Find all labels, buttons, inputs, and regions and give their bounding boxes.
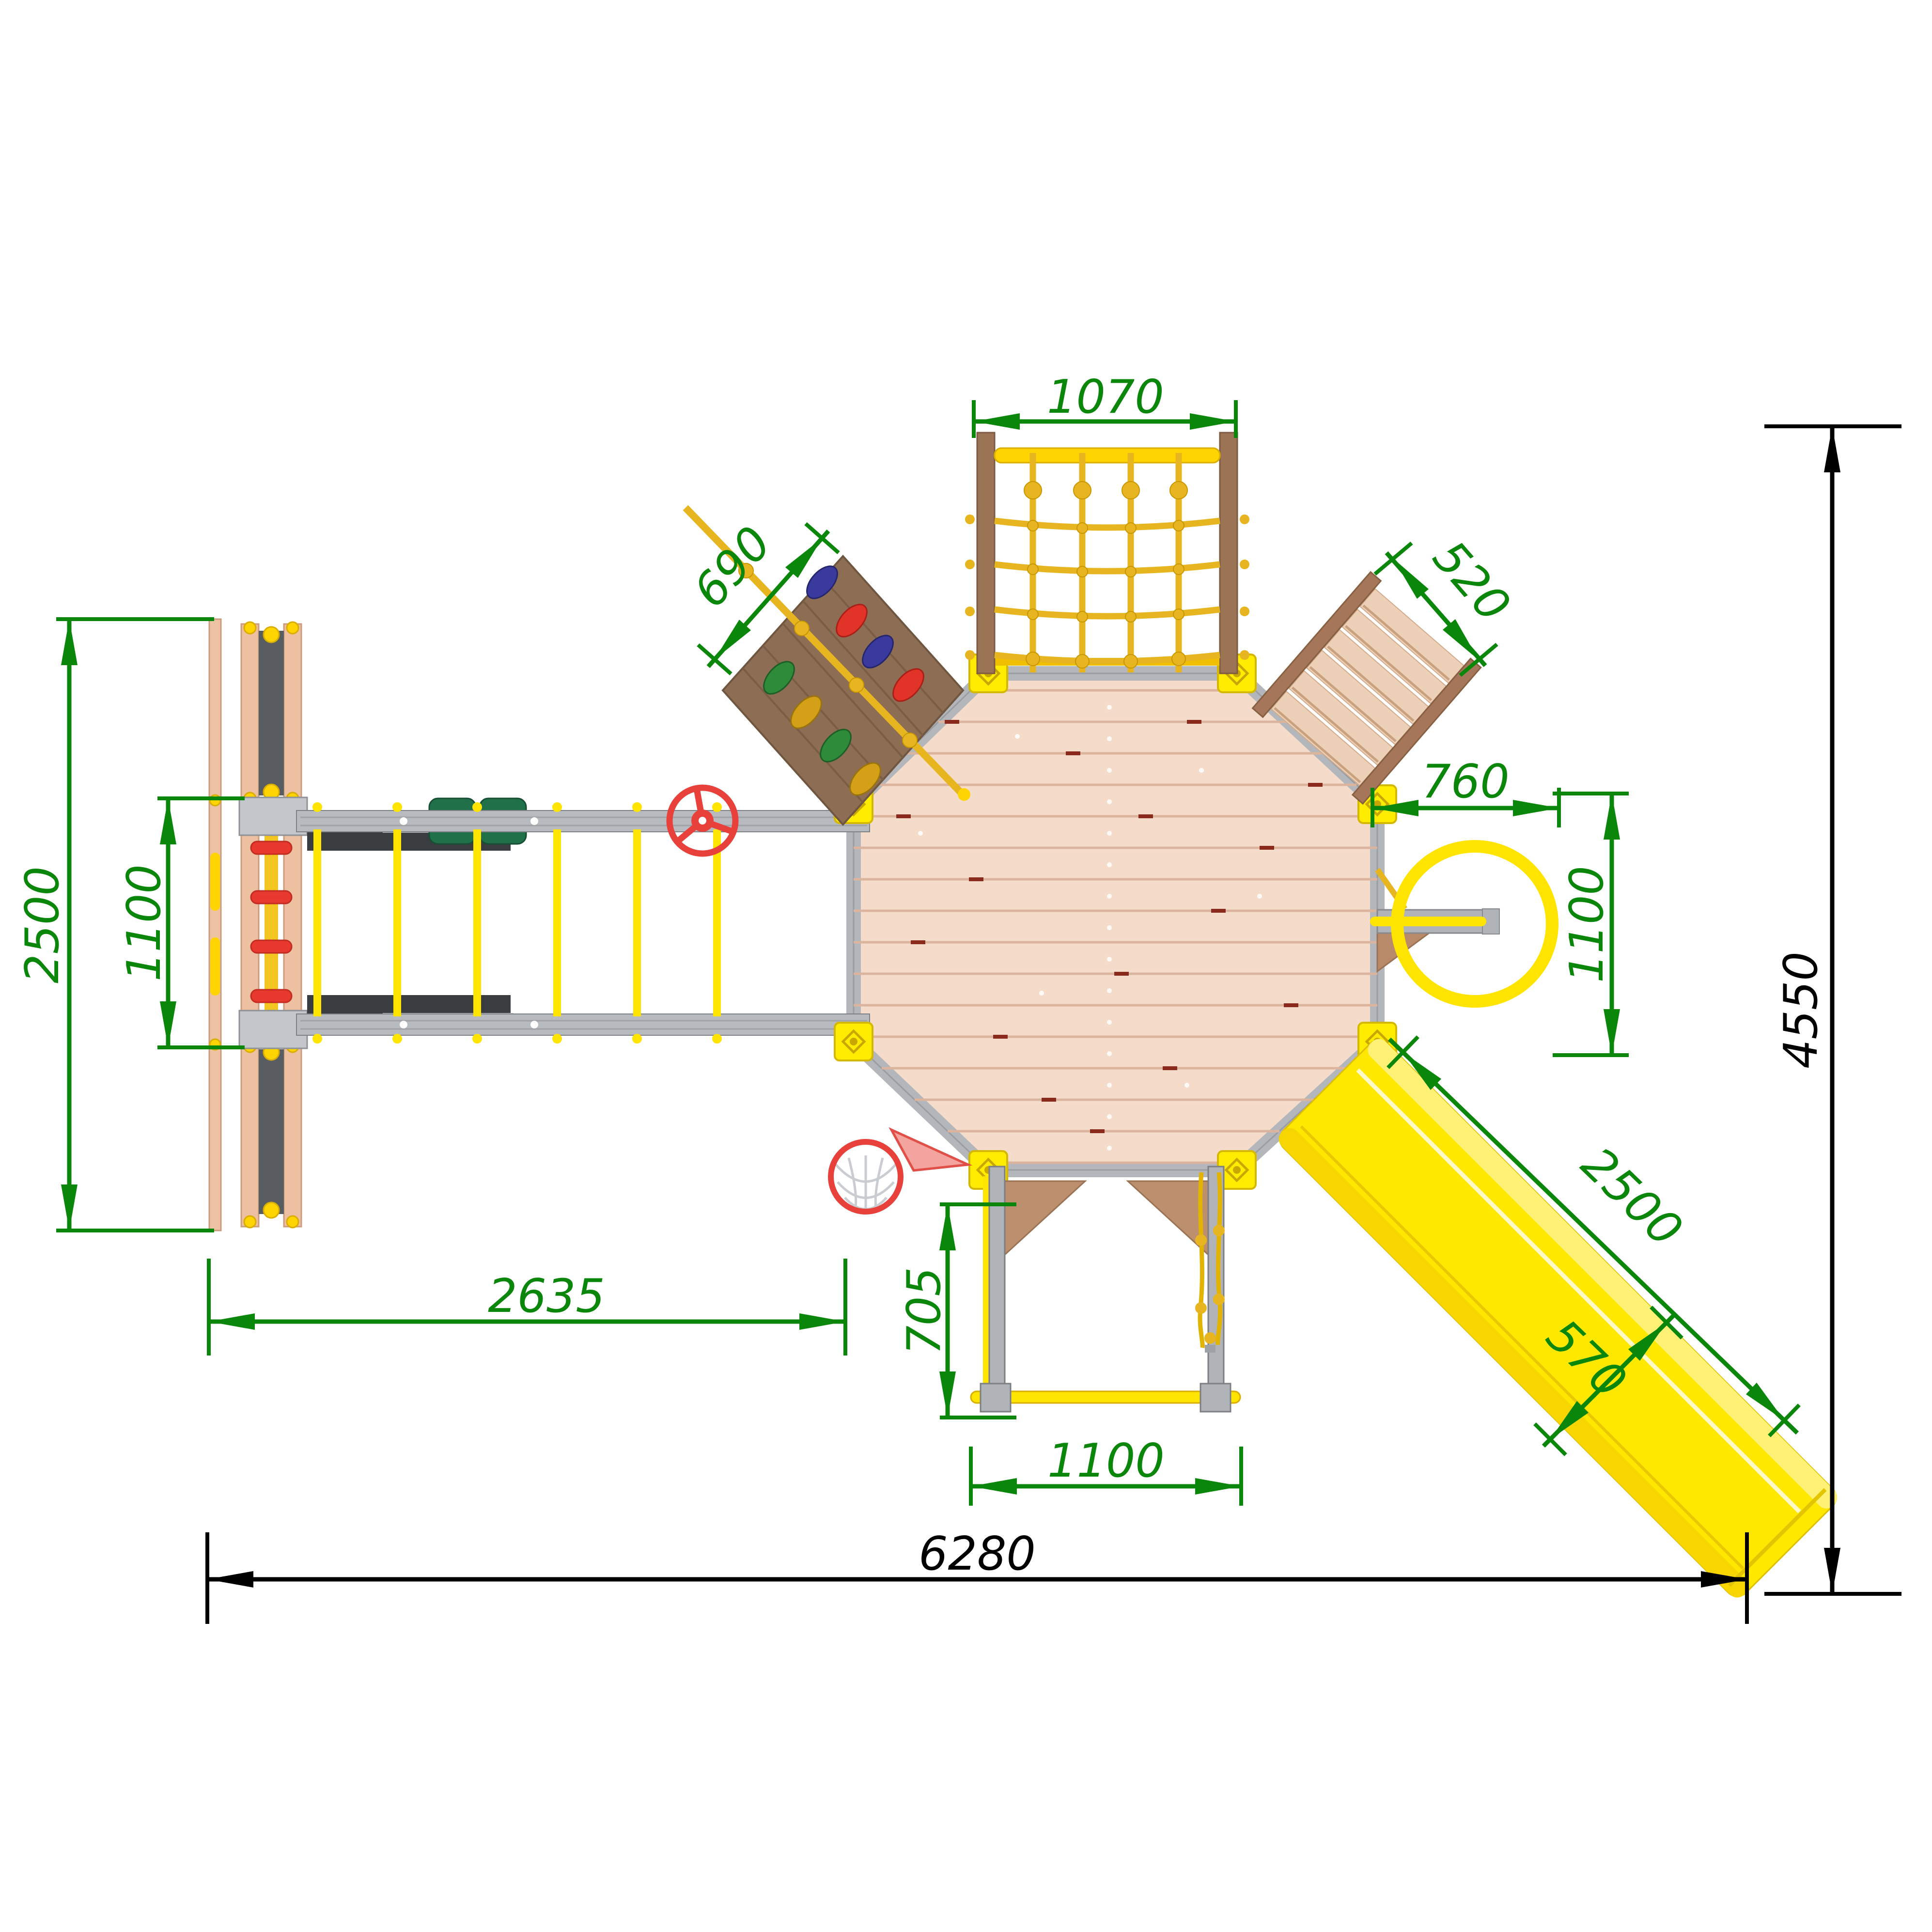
dim-ring-offset: 760 — [1372, 755, 1559, 827]
ladder-beam-left — [241, 624, 259, 1227]
bridge-rungs — [317, 829, 717, 1016]
dim-label-bridge-length: 2635 — [488, 1270, 605, 1323]
dim-bridge-length: 2635 — [209, 1259, 845, 1356]
swing-brace-right — [1128, 1181, 1208, 1255]
drawing-sheet: 1070 690 520 760 1100 — [0, 0, 1932, 1932]
dim-label-swing-depth: 705 — [898, 1267, 951, 1355]
swing-foot-right — [1200, 1384, 1231, 1412]
swing-foot-left — [981, 1384, 1011, 1412]
net-top-bar — [995, 448, 1220, 463]
dim-ring-clearance: 1100 — [1553, 794, 1629, 1055]
dim-ladder-width: 1100 — [118, 798, 245, 1047]
net-ropes-vertical — [1033, 453, 1179, 672]
swing-post-left — [989, 1167, 1005, 1394]
playground-plan-svg: 1070 690 520 760 1100 — [0, 0, 1932, 1932]
ladder-panel-bottom — [259, 1049, 284, 1214]
dim-label-overall-depth: 4550 — [1775, 951, 1828, 1069]
net-post-left — [977, 433, 995, 673]
dim-label-ring-offset: 760 — [1421, 755, 1509, 809]
dim-label-ring-clearance: 1100 — [1560, 866, 1614, 983]
ladder-beam-right — [284, 624, 301, 1227]
net-knots — [1024, 482, 1187, 668]
swing-brace-left — [1005, 1181, 1085, 1255]
dim-swing-width: 1100 — [971, 1434, 1241, 1506]
dim-label-swing-width: 1100 — [1047, 1434, 1165, 1488]
ladder-panel-top — [259, 631, 284, 795]
dim-label-module-depth: 2500 — [16, 866, 69, 983]
side-ladder-module — [209, 619, 514, 1231]
dim-net-width: 1070 — [974, 371, 1236, 438]
basketball-hoop — [831, 1130, 968, 1212]
slide-gloss — [1357, 1070, 1799, 1511]
bridge-rail-bottom — [296, 1014, 870, 1035]
dim-label-slide-length: 2500 — [1571, 1137, 1692, 1257]
ring-bar — [1370, 917, 1486, 926]
net-ropes-horizontal — [995, 521, 1220, 661]
fireman-ring — [1370, 846, 1552, 1001]
slide-bed — [1275, 1035, 1841, 1602]
bridge-rail-top — [296, 810, 870, 832]
octagonal-deck — [854, 673, 1377, 1170]
dim-label-stairs-width: 520 — [1422, 530, 1520, 632]
dim-label-overall-length: 6280 — [919, 1527, 1036, 1581]
ladder-outer-plank — [209, 619, 221, 1231]
dim-label-ladder-width: 1100 — [118, 864, 171, 982]
slide — [1275, 1035, 1841, 1602]
climbing-net — [965, 433, 1249, 673]
rope-ladder-shackle — [1205, 1345, 1215, 1353]
dim-label-net-width: 1070 — [1047, 371, 1164, 424]
dim-module-depth: 2500 — [16, 619, 214, 1231]
net-side-hooks — [965, 514, 1249, 660]
net-post-right — [1220, 433, 1237, 673]
dim-overall-length: 6280 — [207, 1527, 1747, 1624]
